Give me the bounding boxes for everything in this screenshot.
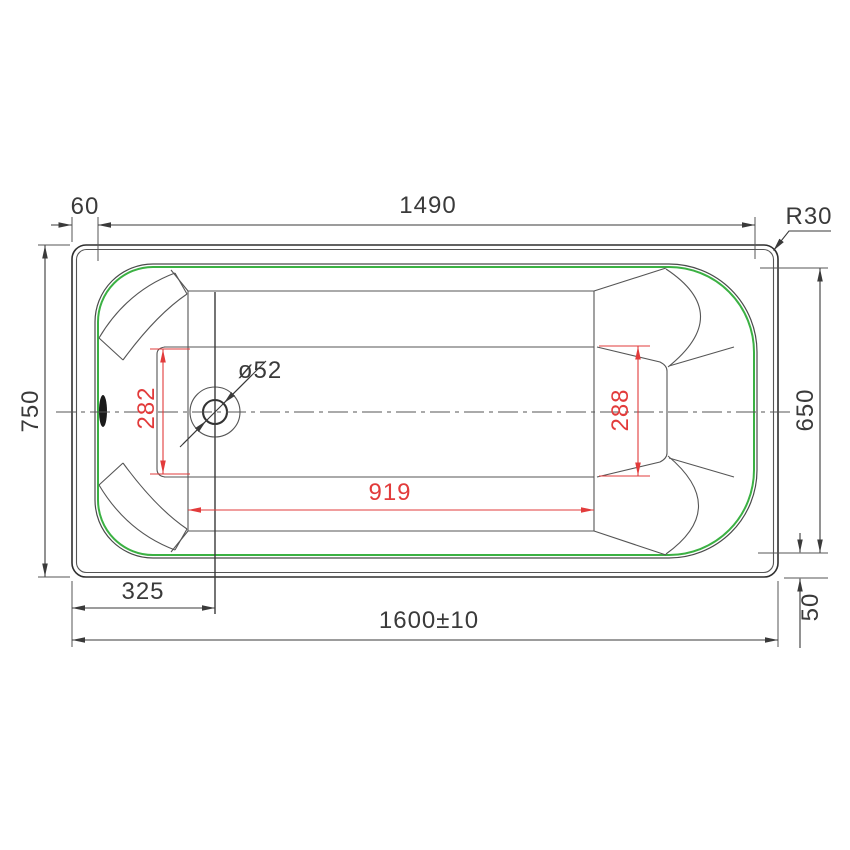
overflow-hole — [99, 395, 107, 427]
dim-bottom-width-back: 288 — [609, 388, 633, 431]
radius-leader — [774, 231, 832, 251]
dim-overall-width: 750 — [19, 389, 43, 432]
dim-rim-offset-top: 60 — [71, 195, 100, 219]
dim-drain-diameter: ø52 — [238, 359, 282, 383]
tub-outer-shell — [72, 245, 778, 577]
drawing-sheet: 60 1490 R30 750 650 50 282 288 ø52 919 3… — [0, 0, 850, 850]
dim-inner-width: 650 — [794, 388, 818, 431]
dim-overall-length: 1600±10 — [379, 609, 479, 633]
dim-rim-drop-side: 50 — [799, 593, 823, 622]
red-extension-lines — [150, 346, 650, 476]
basin-opening — [95, 264, 757, 558]
dim-corner-radius: R30 — [785, 205, 832, 229]
rim-seal-green-line — [98, 267, 754, 555]
drawing-canvas — [0, 0, 850, 850]
dim-inner-length-top: 1490 — [399, 194, 456, 218]
dim-bottom-width-drain: 282 — [135, 386, 159, 429]
dim-drain-offset: 325 — [121, 580, 164, 604]
basin-opening-edge — [95, 264, 757, 558]
dim-bottom-length: 919 — [368, 481, 411, 505]
